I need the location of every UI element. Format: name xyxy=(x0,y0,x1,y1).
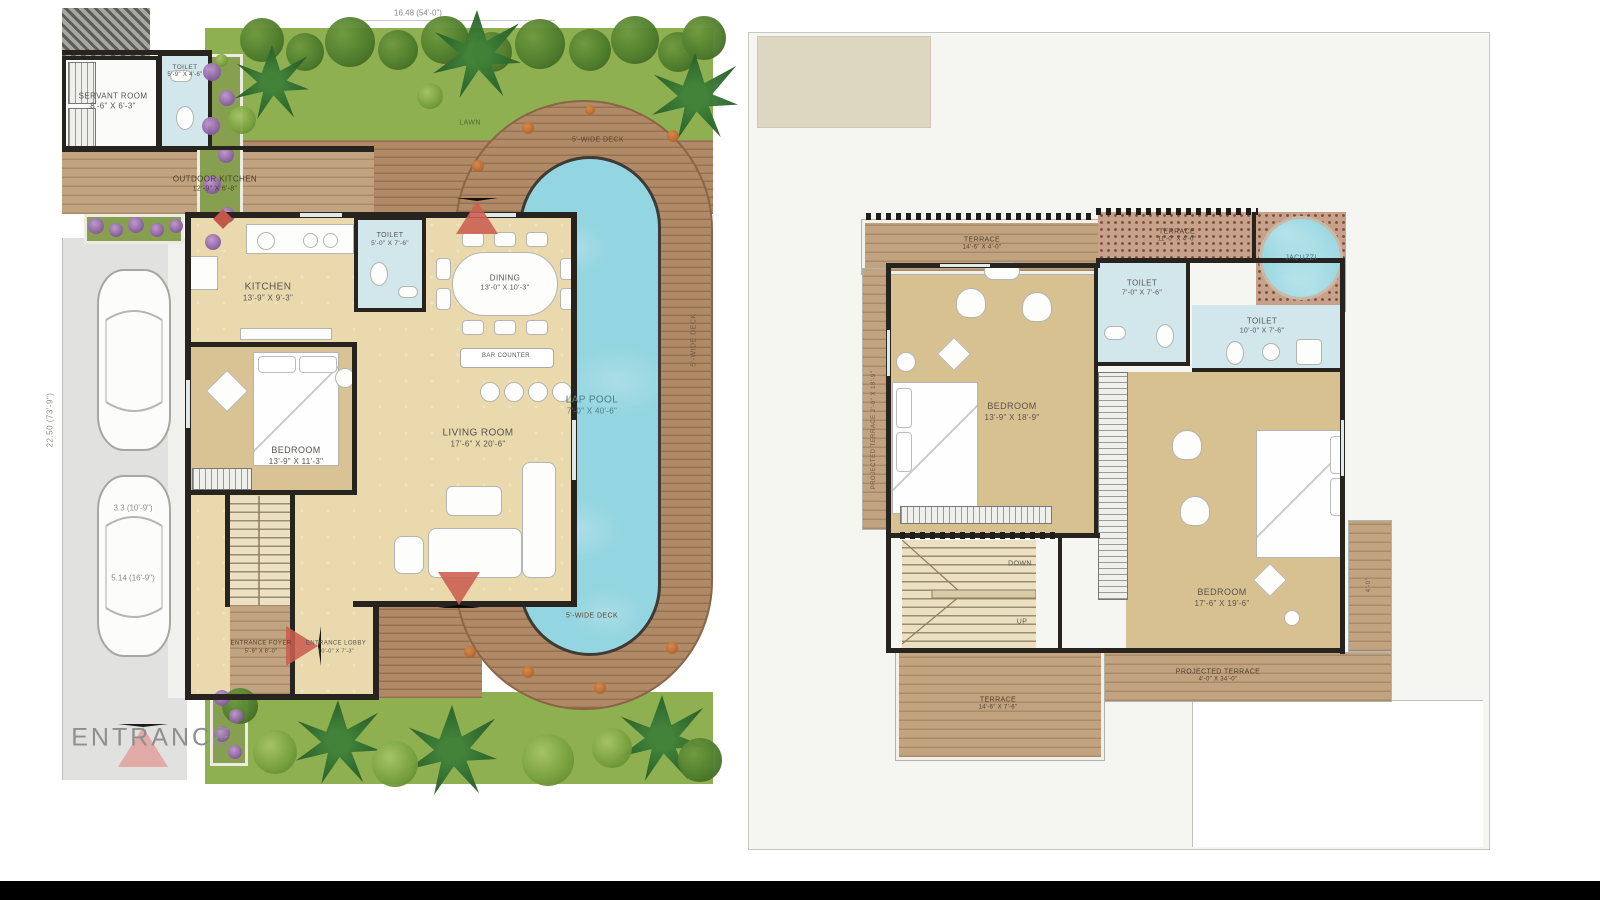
shower-icon xyxy=(1296,339,1322,365)
chair-icon xyxy=(462,232,484,247)
staircase-upper xyxy=(902,540,1036,648)
plant-pot-icon xyxy=(585,105,595,115)
servant-room-label: SERVANT ROOM 8'-6" x 6'-3" xyxy=(79,92,148,113)
bar-stool-icon xyxy=(504,382,524,402)
car-icon xyxy=(86,468,182,664)
hedge-icon xyxy=(682,16,726,60)
jacuzzi-label: JACUZZI xyxy=(1285,253,1317,262)
sink-icon xyxy=(398,286,418,298)
bedroom-ground-label: BEDROOM 13'-9" x 11'-3" xyxy=(269,445,323,467)
sofa-icon xyxy=(428,528,522,578)
hob-burner-icon xyxy=(303,233,318,248)
site-dimension-top: 16.48 (54'-0") xyxy=(394,9,442,18)
toilet-wc-icon xyxy=(176,106,194,130)
terrace-left-label: TERRACE 14'-6" x 4'-0" xyxy=(963,236,1002,253)
chair-icon xyxy=(436,288,451,310)
direction-arrow-icon xyxy=(456,198,498,234)
plant-pot-icon xyxy=(666,642,678,654)
chair-icon xyxy=(494,320,516,335)
flower-bush-icon xyxy=(109,223,123,237)
plant-pot-icon xyxy=(522,122,534,134)
sink-icon xyxy=(1104,326,1126,340)
flower-bush-icon xyxy=(219,90,235,106)
plant-pot-icon xyxy=(594,682,606,694)
sink-icon xyxy=(257,232,275,250)
plant-pot-icon xyxy=(464,646,476,658)
chair-icon xyxy=(462,320,484,335)
tree-icon xyxy=(215,54,228,67)
flower-bush-icon xyxy=(128,217,144,233)
car-icon xyxy=(86,262,182,458)
toilet-1-label: TOILET 7'-0" x 7'-6" xyxy=(1122,278,1162,297)
hedge-icon xyxy=(678,738,722,782)
flower-bush-icon xyxy=(169,219,183,233)
side-table-icon xyxy=(896,352,916,372)
toilet-1 xyxy=(1098,262,1190,362)
hedge-icon xyxy=(378,30,418,70)
kitchen-cabinet xyxy=(240,328,332,340)
pillow-icon xyxy=(896,432,912,472)
bar-counter-label: BAR COUNTER xyxy=(482,353,530,361)
hob-burner-icon xyxy=(323,233,338,248)
terrace-railing xyxy=(866,213,1096,220)
sink-icon xyxy=(1262,343,1280,361)
living-room-label: LIVING ROOM 17'-6" x 20'-6" xyxy=(442,426,513,449)
bar-stool-icon xyxy=(480,382,500,402)
toilet-wc-icon xyxy=(370,262,388,286)
wardrobe-icon xyxy=(900,506,1052,524)
kitchen-counter xyxy=(246,224,354,254)
pillow-icon xyxy=(299,356,337,373)
direction-arrow-icon xyxy=(438,572,480,608)
lounge-chair-icon xyxy=(1180,496,1210,526)
toilet-wc-icon xyxy=(1156,324,1174,348)
lounge-chair-icon xyxy=(1172,430,1202,460)
bedroom-1-label: BEDROOM 13'-9" x 18'-9" xyxy=(984,401,1039,423)
coffee-table-icon xyxy=(446,486,502,516)
stairs-up-label: UP xyxy=(1017,617,1028,626)
staircase xyxy=(228,496,290,606)
wardrobe-icon xyxy=(192,468,252,490)
flower-bush-icon xyxy=(205,234,221,250)
floor-plan-canvas: 16.48 (54'-0") 22.50 (73'-9") LAWN LAP P… xyxy=(0,0,1600,900)
plant-pot-icon xyxy=(472,160,484,172)
lounge-chair-icon xyxy=(956,288,986,318)
toilet-2 xyxy=(1192,305,1342,370)
site-dimension-left: 22.50 (73'-9") xyxy=(46,393,55,448)
parking-dim-1: 3.3 (10'-9") xyxy=(111,504,154,513)
bedroom-2-label: BEDROOM 17'-6" x 19'-6" xyxy=(1194,587,1249,609)
terrace-railing xyxy=(1096,208,1258,215)
pillow-icon xyxy=(896,388,912,428)
toilet-wc-icon xyxy=(1226,341,1244,365)
hedge-icon xyxy=(325,17,375,67)
stair-wall-hatch xyxy=(900,532,1060,539)
bar-stool-icon xyxy=(528,382,548,402)
hedge-icon xyxy=(569,29,611,71)
deck-label-bottom: 5'-WIDE DECK xyxy=(566,611,618,620)
chair-icon xyxy=(436,258,451,280)
armchair-icon xyxy=(394,536,424,574)
toilet-top-label: TOILET 5'-9" x 4'-6" xyxy=(167,64,202,80)
flower-bush-icon xyxy=(202,117,220,135)
entrance-foyer-label: ENTRANCE FOYER 5'-9" x 8'-0" xyxy=(231,641,292,656)
deck-label-top: 5'-WIDE DECK xyxy=(572,135,624,144)
wardrobe-icon xyxy=(1098,372,1128,600)
tree-icon xyxy=(228,106,256,134)
outdoor-kitchen-label: OUTDOOR KITCHEN 12'-9" x 6'-8" xyxy=(173,174,257,193)
sofa-icon xyxy=(522,462,556,578)
lounge-chair-icon xyxy=(1022,292,1052,322)
chair-icon xyxy=(526,320,548,335)
parking-dim-2: 5.14 (16'-9") xyxy=(109,574,157,583)
entrance-lobby-label: ENTRANCE LOBBY 10'-0" x 7'-3" xyxy=(306,641,366,656)
tree-icon xyxy=(253,730,297,774)
lower-roof-cutout xyxy=(1192,700,1483,847)
tree-icon xyxy=(417,83,443,109)
flower-bush-icon xyxy=(88,218,104,234)
projected-terrace-bottom-label: PROJECTED TERRACE 4'-0" x 34'-0" xyxy=(1176,668,1260,685)
hedge-icon xyxy=(611,16,659,64)
dining-label: DINING 13'-0" x 10'-3" xyxy=(481,273,530,292)
stairs-down-label: DOWN xyxy=(1008,559,1032,568)
tree-icon xyxy=(592,728,632,768)
terrace-bottom-label: TERRACE 14'-6" x 7'-6" xyxy=(979,696,1018,713)
deck-label-right: 5'-WIDE DECK xyxy=(691,313,698,366)
chair-icon xyxy=(526,232,548,247)
plant-pot-icon xyxy=(522,666,534,678)
kitchen-label: KITCHEN 13'-9" x 9'-3" xyxy=(243,280,293,303)
fridge-icon xyxy=(190,256,218,290)
plant-pot-icon xyxy=(667,130,679,142)
closet-icon xyxy=(68,108,96,148)
chair-icon xyxy=(494,232,516,247)
flower-bush-icon xyxy=(229,709,243,723)
hedge-icon xyxy=(515,19,565,69)
side-terrace-dim: 4'-0" xyxy=(1366,578,1372,592)
tree-icon xyxy=(522,734,574,786)
lawn-label: LAWN xyxy=(459,118,481,127)
plant-pot-icon xyxy=(1284,610,1300,626)
tree-icon xyxy=(372,741,418,787)
projected-terrace-left-label: PROJECTED TERRACE 2'-0" x 18'-9" xyxy=(871,371,877,490)
toilet-2-label: TOILET 10'-0" x 7'-6" xyxy=(1240,316,1285,335)
toilet-ground-label: TOILET 5'-0" x 7'-6" xyxy=(371,231,409,249)
pillow-icon xyxy=(258,356,296,373)
hedge-icon xyxy=(240,18,284,62)
lap-pool-label: LAP POOL 7'-0" x 40'-6" xyxy=(566,393,619,416)
bottom-bar xyxy=(0,881,1600,900)
flower-bush-icon xyxy=(150,223,164,237)
entrance-label: ENTRANCE xyxy=(71,724,233,753)
terrace-top-label: TERRACE 11'-0" x 4'-0" xyxy=(1158,228,1196,245)
roof-block xyxy=(757,36,931,128)
